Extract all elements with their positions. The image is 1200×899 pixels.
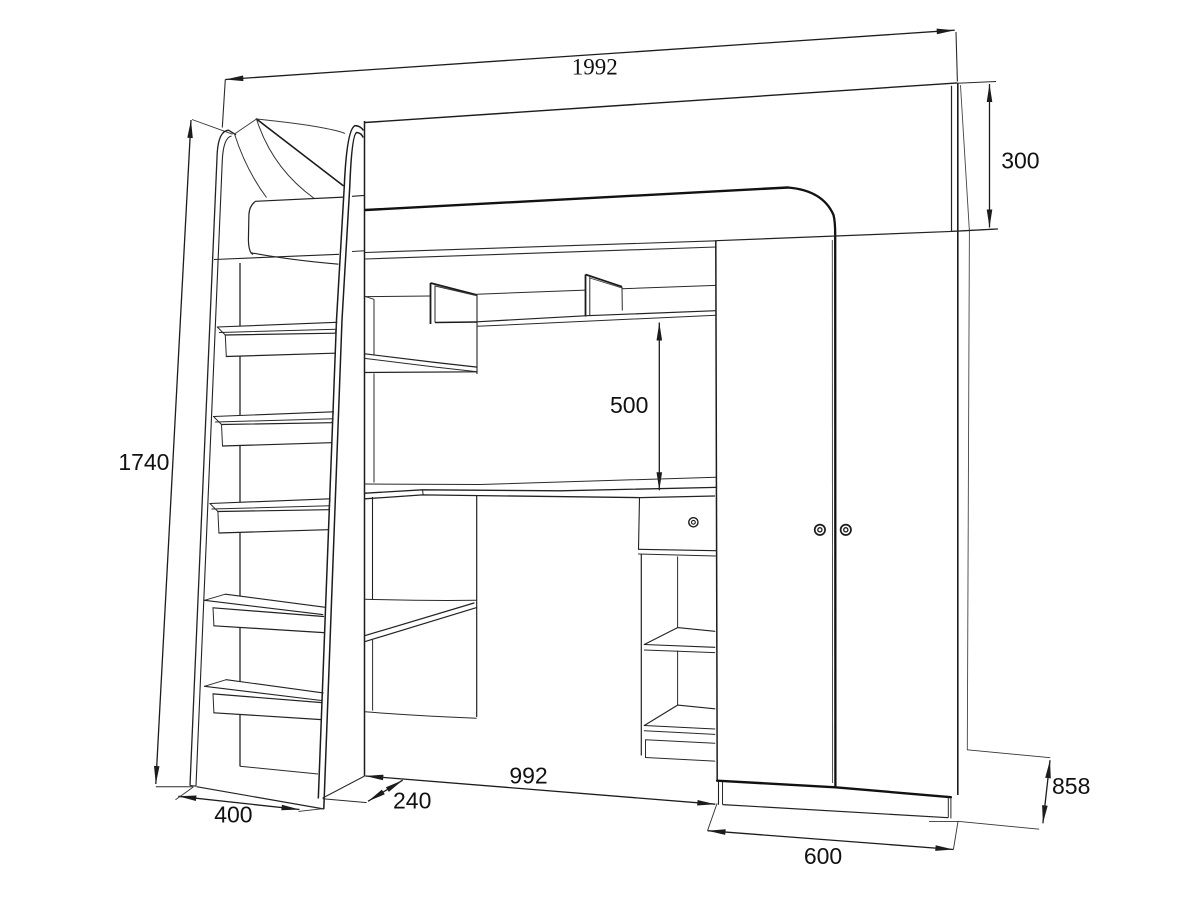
svg-text:1740: 1740: [118, 449, 169, 475]
svg-text:600: 600: [804, 843, 842, 869]
svg-text:858: 858: [1052, 773, 1090, 799]
svg-text:240: 240: [393, 788, 431, 814]
svg-text:992: 992: [509, 763, 547, 789]
svg-text:400: 400: [214, 802, 252, 828]
svg-text:300: 300: [1001, 148, 1039, 174]
svg-text:1992: 1992: [572, 55, 618, 80]
svg-text:500: 500: [610, 392, 648, 418]
